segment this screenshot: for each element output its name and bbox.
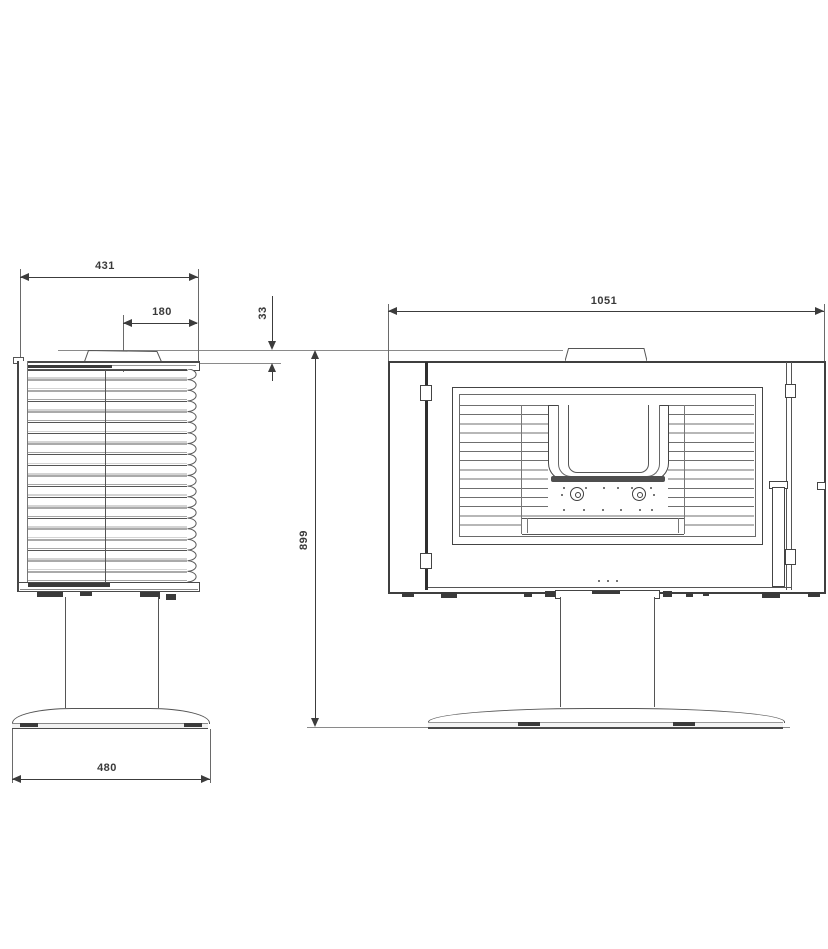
front-foot (441, 592, 457, 598)
bottom-dot (616, 580, 618, 582)
vent-dot (639, 509, 641, 511)
dim-1051-label: 1051 (582, 294, 626, 308)
front-base-pad (673, 722, 695, 726)
front-foot (686, 592, 693, 597)
front-pedestal-column (560, 597, 655, 707)
vent-dot (620, 509, 622, 511)
door-bottom-edge (428, 587, 791, 588)
front-foot (663, 591, 672, 597)
dim-arrow-down-icon (311, 718, 319, 727)
knob-center-left (575, 492, 581, 498)
front-base-pad (518, 722, 540, 726)
front-foot (808, 592, 820, 597)
front-flue-collar (565, 348, 647, 361)
vent-dot (585, 487, 587, 489)
vent-dot (602, 509, 604, 511)
front-base-plate (428, 722, 783, 729)
body-side-notch (817, 482, 826, 490)
door-latch-bottom (785, 549, 796, 565)
vent-dot (563, 509, 565, 511)
vent-dot (583, 509, 585, 511)
knob-center-right (637, 492, 643, 498)
door-hinge-bottom (420, 553, 432, 569)
door-latch-top (785, 384, 796, 398)
dim-899-label: 899 (297, 523, 311, 557)
vent-dot (653, 494, 655, 496)
window-sill-bar (551, 476, 665, 482)
ash-slot-end-right (678, 518, 679, 533)
front-pedestal-dome (428, 708, 785, 723)
vent-dot (650, 487, 652, 489)
dim-1051-extension-right (824, 304, 825, 361)
vent-dot (617, 487, 619, 489)
vent-dot (563, 487, 565, 489)
technical-drawing-canvas: 431 180 33 (0, 0, 828, 949)
louver-divider-right (684, 405, 685, 534)
ash-slot (522, 518, 684, 535)
dim-arrow-right-icon (815, 307, 824, 315)
louver-divider-left (521, 405, 522, 534)
dim-arrow-up-icon (311, 350, 319, 359)
vent-dot (651, 509, 653, 511)
dim-arrow-left-icon (388, 307, 397, 315)
dim-899-line (315, 359, 316, 718)
door-hinge-top (420, 385, 432, 401)
front-foot (402, 592, 414, 597)
front-foot (703, 592, 709, 596)
dim-1051-line (388, 311, 824, 312)
front-foot (524, 592, 532, 597)
bottom-dot (598, 580, 600, 582)
door-handle-bar (772, 487, 785, 587)
vent-dot (561, 494, 563, 496)
front-foot (762, 592, 780, 598)
bottom-dot (607, 580, 609, 582)
ash-slot-end-left (527, 518, 528, 533)
front-view: 1051 899 (0, 0, 828, 949)
vent-dot (603, 487, 605, 489)
door-window-glass (568, 405, 649, 473)
mount-plate-insert (592, 591, 620, 594)
